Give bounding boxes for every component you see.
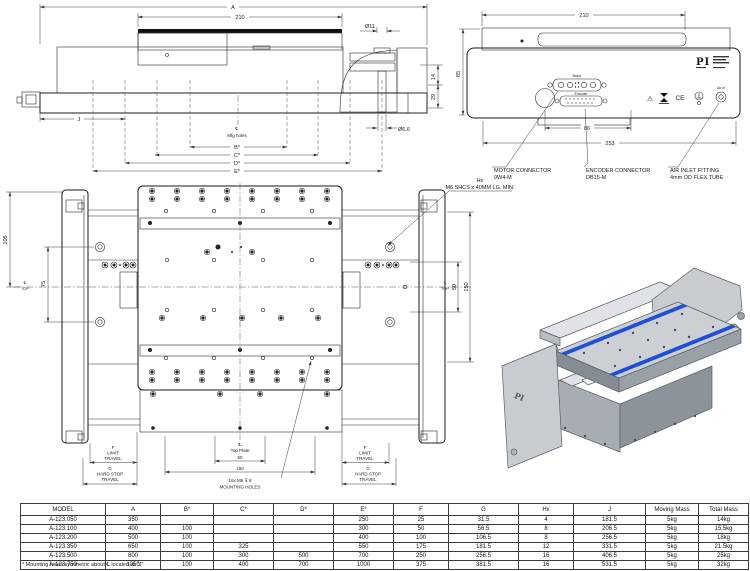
datasheet-page: A 210 Ø11 Ø6.6 14 29 J ℄ Mfg holes xyxy=(0,0,750,571)
side-view: A 210 Ø11 Ø6.6 14 29 J ℄ Mfg holes xyxy=(17,2,443,175)
isometric-render: PI xyxy=(502,268,745,468)
motor-callout-2: 9W4-M xyxy=(494,175,512,181)
footnote: * Mounting holes symmetric about ℄ locat… xyxy=(22,562,143,568)
dim-105-label: 105 xyxy=(3,235,9,244)
g-travel-2-right: HARD STOP xyxy=(355,472,381,477)
screw-note-2: M6 SHCS x 40MM LG. MIN. xyxy=(445,185,515,191)
g-travel-2-left: HARD STOP xyxy=(97,472,123,477)
technical-drawing: A 210 Ø11 Ø6.6 14 29 J ℄ Mfg holes xyxy=(0,0,750,500)
motor-callout-1: MOTOR CONNECTOR xyxy=(494,168,551,174)
front-view: PI Motor Encoder xyxy=(456,10,740,181)
dim-j-label: J xyxy=(78,117,81,123)
top-plate-cl-label: Top Plate xyxy=(231,448,250,453)
table-row: A-123.0503502502531.54181.55kg14kg xyxy=(21,516,749,525)
dim-85-label: 85 xyxy=(456,71,462,77)
air-callout-1: AIR INLET FITTING xyxy=(670,168,719,174)
centerline-symbol: ℄ xyxy=(236,126,239,131)
svg-text:PI: PI xyxy=(696,57,710,68)
cl-top-symbol-left: ℄ xyxy=(24,280,27,285)
encoder-port-label: Encoder xyxy=(574,92,588,96)
table-row: A-123.200500100400100106.58256.55kg18kg xyxy=(21,534,749,543)
dim-14-label: 14 xyxy=(431,74,437,80)
top-plate-cl-symbol: ℄ xyxy=(239,442,242,447)
col-g: G xyxy=(449,504,519,516)
crush-warning-icon xyxy=(659,93,669,104)
dim-150-side-label: 150 xyxy=(464,282,470,291)
f-travel-2-left: LIMIT xyxy=(107,451,119,456)
g-travel-3-right: TRAVEL xyxy=(359,477,377,482)
motor-port-label: Motor xyxy=(573,74,583,78)
col-e: E* xyxy=(334,504,394,516)
col-j: J xyxy=(574,504,646,516)
dim-50-bottom: 50 xyxy=(237,455,243,460)
pi-logo: PI xyxy=(696,56,729,68)
dia-11-label: Ø11 xyxy=(365,24,375,30)
spec-table: MODEL A B* C* D* E* F G Hx J Moving Mass… xyxy=(20,503,749,570)
mounting-note-2: MOUNTING HOLES xyxy=(219,485,260,490)
dim-29-label: 29 xyxy=(431,94,437,100)
dim-210-front: 210 xyxy=(579,13,588,19)
air-callout-2: 4mm OD FLEX TUBE xyxy=(670,175,724,181)
ground-icon xyxy=(695,92,703,105)
table-row: A-123.500800100300500700250256.516406.55… xyxy=(21,552,749,561)
motor-connector: Motor xyxy=(548,74,606,91)
col-model: MODEL xyxy=(21,504,106,516)
cl-top-symbol-right: ℄ xyxy=(444,280,447,285)
col-c: C* xyxy=(214,504,274,516)
col-d: D* xyxy=(274,504,334,516)
section-cut xyxy=(340,50,397,112)
dim-75-label: 75 xyxy=(41,281,47,287)
f-travel-3-right: TRAVEL xyxy=(356,456,374,461)
dim-210-label: 210 xyxy=(235,15,244,21)
top-view: 105 75 ℄ TOP ℄ TOP 50 150 Hx M6 SHCS x 4… xyxy=(3,178,515,490)
dim-150-bottom: 150 xyxy=(236,466,244,471)
dim-253-label: 253 xyxy=(605,141,614,147)
encoder-callout-2: DB15-M xyxy=(586,175,607,181)
col-b: B* xyxy=(161,504,214,516)
dim-86-label: 86 xyxy=(584,126,590,132)
col-a: A xyxy=(106,504,161,516)
air-in-label: Air In xyxy=(717,86,725,90)
col-hx: Hx xyxy=(519,504,574,516)
encoder-callout-1: ENCODER CONNECTOR xyxy=(586,168,650,174)
dim-a-label: A xyxy=(231,5,235,11)
air-inlet-fitting: Air In xyxy=(716,86,726,102)
g-travel-1-right: G xyxy=(366,466,370,471)
dim-50-side-label: 50 xyxy=(452,284,458,290)
g-travel-1-left: G xyxy=(108,466,112,471)
f-travel-3-left: TRAVEL xyxy=(104,456,122,461)
f-travel-1-left: F xyxy=(112,445,115,450)
cable-hole xyxy=(536,89,555,108)
col-moving-mass: Moving Mass xyxy=(646,504,699,516)
dim-e-label: E* xyxy=(234,169,241,175)
f-travel-1-right: F xyxy=(364,445,367,450)
rail-holes xyxy=(95,242,406,326)
dia-66-label: Ø6.6 xyxy=(398,127,410,133)
col-f: F xyxy=(394,504,449,516)
mfg-holes-label: Mfg holes xyxy=(227,133,247,138)
table-row: A-123.1004001003005056.58206.55kg15.5kg xyxy=(21,525,749,534)
col-total-mass: Total Mass xyxy=(699,504,749,516)
mounting-note-1: 16x M6 ⊽ 8 xyxy=(228,478,252,483)
f-travel-2-right: LIMIT xyxy=(359,451,371,456)
ce-mark: CE xyxy=(675,95,685,102)
warning-icon: ⚠ xyxy=(647,95,654,103)
encoder-connector: Encoder xyxy=(555,92,607,106)
table-row: A-123.350650100325550175181.512331.55kg2… xyxy=(21,543,749,552)
cl-top-label-right: TOP xyxy=(441,286,449,291)
cl-top-label-left: TOP xyxy=(21,286,29,291)
table-header-row: MODEL A B* C* D* E* F G Hx J Moving Mass… xyxy=(21,504,749,516)
screw-note-1: Hx xyxy=(477,178,484,184)
g-travel-3-left: TRAVEL xyxy=(101,477,119,482)
